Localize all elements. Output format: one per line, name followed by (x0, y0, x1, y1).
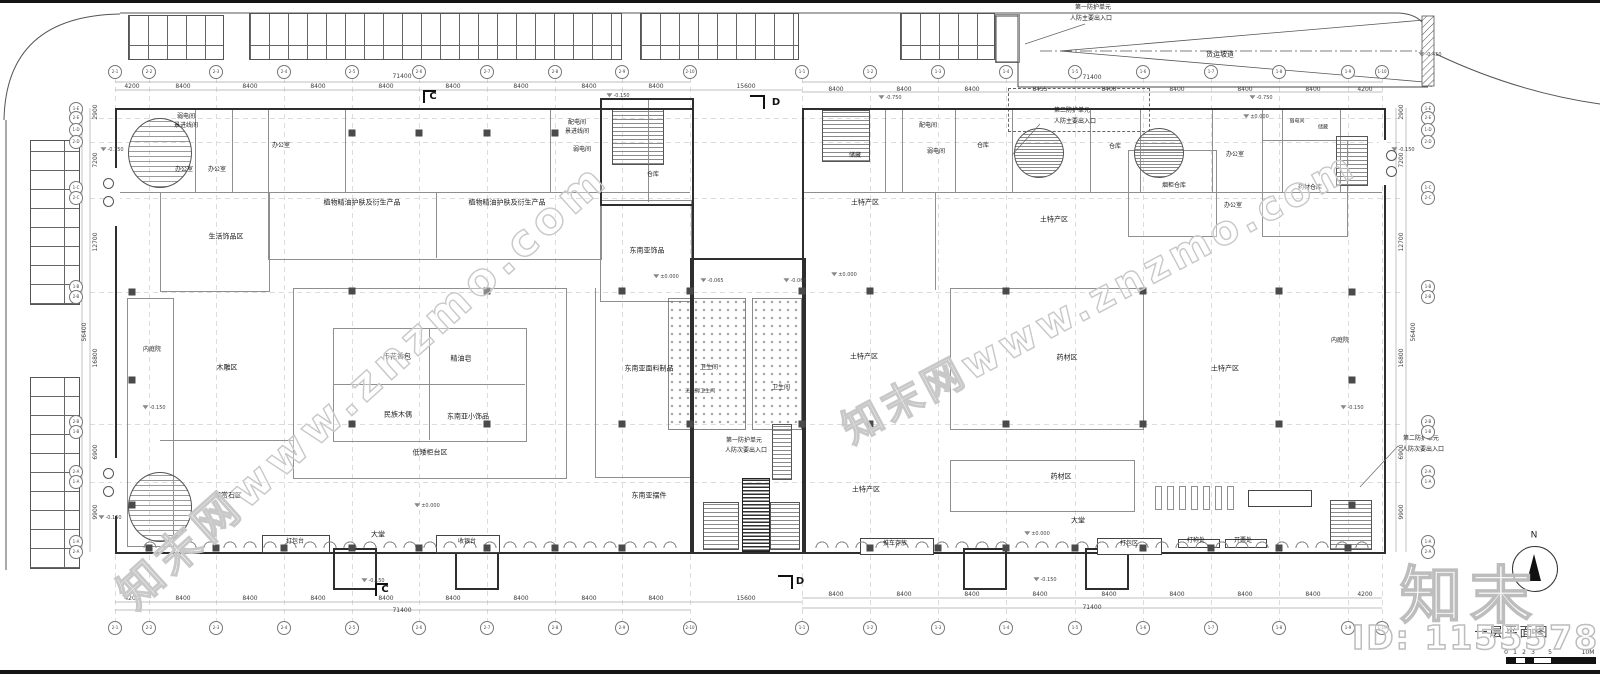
north-label: N (1531, 532, 1538, 541)
grid-bubble: 2-B (1421, 290, 1435, 304)
plan-label: -0.450 (1418, 52, 1441, 58)
structural-column (867, 421, 874, 428)
door-arc (1386, 166, 1397, 177)
plan-label: 土特产区 (851, 200, 879, 207)
grid-bubble: 2-5 (345, 65, 359, 79)
grid-bubble: 1-1 (795, 65, 809, 79)
grid-bubble: 2-2 (142, 65, 156, 79)
grid-bubble: 2-C (1421, 191, 1435, 205)
structural-column (484, 421, 491, 428)
plan-label: 8400 (1169, 87, 1184, 93)
plan-label: 8400 (581, 84, 596, 90)
plan-label: 8400 (964, 592, 979, 598)
grid-bubble: 2-3 (209, 621, 223, 635)
structural-column (484, 545, 491, 552)
grid-bubble: 2-4 (277, 65, 291, 79)
plan-label: 10M (1582, 650, 1595, 656)
grid-bubble: 2-6 (412, 621, 426, 635)
door-arc (103, 486, 114, 497)
door-arc (103, 178, 114, 189)
site-curve-topright (1436, 54, 1600, 104)
grid-bubble: 2-7 (480, 621, 494, 635)
plan-label: ±0.000 (653, 274, 679, 280)
plan-label: 人防主要出入口 (1070, 16, 1112, 22)
plan-label: 8400 (581, 596, 596, 602)
structural-column (213, 545, 220, 552)
plan-label: 弱电间 (1289, 120, 1304, 125)
grid-bubble: 1-5 (1068, 621, 1082, 635)
grid-bubble: 2-9 (615, 621, 629, 635)
plan-label: D (796, 577, 804, 587)
plan-label: 8400 (1101, 592, 1116, 598)
plan-label: 干花香包 (383, 354, 411, 361)
entrance-gap (112, 168, 120, 226)
grid-bubble: 2-7 (480, 65, 494, 79)
plan-label: 办公室 (1224, 203, 1242, 209)
plan-label: 内庭院 (143, 347, 161, 353)
plan-label: 8400 (828, 87, 843, 93)
plan-label: 药材区 (1051, 474, 1072, 481)
grid-bubble: 1-9 (1341, 621, 1355, 635)
plan-label: 办公室 (1226, 152, 1244, 158)
plan-label: 8400 (513, 596, 528, 602)
grid-bubble: 1-10 (1375, 65, 1389, 79)
plan-label: 15600 (736, 596, 755, 602)
grid-bubble: 1-6 (1136, 621, 1150, 635)
plan-label: -0.150 (142, 405, 165, 411)
grid-bubble: 2-5 (345, 621, 359, 635)
plan-label: 收银台 (458, 539, 476, 545)
grid-bubble: 1-2 (863, 65, 877, 79)
structural-column (1003, 545, 1010, 552)
grid-bubble: 2-9 (615, 65, 629, 79)
scale-segment (1551, 658, 1595, 663)
plan-label: 配电间 (568, 120, 586, 126)
scale-segment (1516, 658, 1525, 663)
plan-label: 人防次要出入口 (725, 448, 767, 454)
sheet-border-top (0, 0, 1600, 3)
plan-label: 4200 (1357, 592, 1372, 598)
plan-label: 4200 (124, 84, 139, 90)
structural-column (416, 545, 423, 552)
plan-label: 第一防护单元 (726, 438, 762, 444)
plan-label: ±0.000 (414, 503, 440, 509)
grid-bubble: 2-2 (142, 621, 156, 635)
plan-label: 开票处 (1234, 538, 1252, 544)
plan-label: 8400 (310, 84, 325, 90)
plan-label: 8455 (1032, 87, 1047, 93)
plan-label: 8400 (1169, 592, 1184, 598)
plan-label: 8400 (1305, 592, 1320, 598)
plan-label: 8400 (828, 592, 843, 598)
plan-label: C (381, 585, 388, 595)
door-arc (103, 196, 114, 207)
grid-bubble: 1-A (69, 475, 83, 489)
plan-label: 8400 (896, 592, 911, 598)
structural-column (867, 545, 874, 552)
structural-column (687, 421, 694, 428)
plan-label: 民族木偶 (384, 412, 412, 419)
ramp-end-hatch (1422, 16, 1434, 86)
plan-label: -0.150 (1391, 147, 1414, 153)
door-arc (103, 468, 114, 479)
plan-label: 精油皂 (451, 356, 472, 363)
plan-label: 12700 (1399, 232, 1405, 251)
plan-label: 第一防护单元 (1075, 5, 1111, 11)
plan-label: 药材仓库 (1298, 185, 1322, 191)
entrance-gap (112, 458, 120, 516)
structural-column (799, 288, 806, 295)
plan-label: 土特产区 (1040, 217, 1068, 224)
structural-column (935, 545, 942, 552)
plan-label: 9900 (1399, 504, 1405, 519)
site-corner-curve-topleft (4, 14, 120, 120)
site-boundary-top (120, 13, 1431, 87)
structural-column (349, 545, 356, 552)
plan-label: 8400 (1237, 87, 1252, 93)
plan-label: 8400 (1305, 87, 1320, 93)
plan-label: 8400 (513, 84, 528, 90)
plan-label: 2900 (93, 104, 99, 119)
plan-label: 5 (1548, 650, 1552, 656)
section-cut-marks (376, 91, 792, 596)
structural-column (687, 288, 694, 295)
plan-label: 人防次要出入口 (1402, 447, 1444, 453)
plan-label: 内庭院 (1331, 338, 1349, 344)
structural-column (1003, 421, 1010, 428)
grid-bubble: 1-3 (931, 621, 945, 635)
plan-label: 植物精油护肤及衍生产品 (324, 200, 401, 207)
plan-label: 东南亚饰品 (630, 248, 665, 255)
plan-label: 71400 (392, 74, 411, 80)
structural-column (484, 130, 491, 137)
structural-column (552, 545, 559, 552)
plan-label: 东南亚面料制品 (625, 366, 674, 373)
grid-bubble: 2-10 (683, 65, 697, 79)
plan-label: 仓库 (977, 143, 989, 149)
plan-label: C (429, 92, 436, 102)
plan-label: 观赏石区 (214, 493, 242, 500)
plan-label: 4200 (124, 596, 139, 602)
plan-label: 56400 (1411, 322, 1417, 341)
plan-label: 1 (1513, 650, 1517, 656)
plan-label: 低矮柜台区 (413, 450, 448, 457)
plan-label: 第二防护单元 (1403, 436, 1439, 442)
plan-label: 7200 (1399, 152, 1405, 167)
plan-label: -0.150 (98, 515, 121, 521)
structural-column (1140, 545, 1147, 552)
grid-bubble: 2-1 (108, 65, 122, 79)
plan-label: 8400 (1237, 592, 1252, 598)
scale-segment (1525, 658, 1534, 663)
grid-bubble: 1-10 (1375, 621, 1389, 635)
grid-bubble: 1-A (1421, 475, 1435, 489)
plan-label: -0.750 (878, 95, 901, 101)
grid-bubble: 2-D (1421, 135, 1435, 149)
scale-bar (1506, 657, 1596, 664)
plan-label: 15600 (736, 84, 755, 90)
grid-bubble: 2-1 (108, 621, 122, 635)
structural-column (1140, 421, 1147, 428)
plan-label: 8400 (378, 596, 393, 602)
structural-column (1208, 545, 1215, 552)
grid-bubble: 1-7 (1204, 621, 1218, 635)
plan-label: 弱电间 (177, 114, 195, 120)
structural-column (799, 421, 806, 428)
structural-column (1276, 421, 1283, 428)
grid-bubble: 2-10 (683, 621, 697, 635)
plan-label: -0.150 (361, 578, 384, 584)
plan-label: ±0.000 (1243, 114, 1269, 120)
structural-column (484, 288, 491, 295)
plan-label: 推车存放 (883, 541, 907, 547)
plan-label: 8400 (175, 84, 190, 90)
plan-label: 木雕区 (217, 365, 238, 372)
grid-bubble: 2-D (69, 135, 83, 149)
plan-label: 8400 (648, 84, 663, 90)
north-arrow-icon (1527, 554, 1541, 581)
grid-bubble: 2-B (69, 290, 83, 304)
plan-label: 8400 (1101, 87, 1116, 93)
plan-label: 大堂 (371, 532, 385, 539)
plan-label: 景进线间 (565, 129, 589, 135)
plan-label: ±0.000 (831, 272, 857, 278)
plan-label: 药材区 (1057, 355, 1078, 362)
structural-column (281, 545, 288, 552)
plan-label: 8400 (896, 87, 911, 93)
scale-segment (1507, 658, 1516, 663)
plan-label: 土特产区 (1211, 366, 1239, 373)
plan-label: D (772, 98, 780, 108)
plan-label: 8400 (964, 87, 979, 93)
plan-label: 0 (1504, 650, 1508, 656)
plan-label: 景进线间 (174, 123, 198, 129)
grid-bubble: 1-2 (863, 621, 877, 635)
plan-label: 卫生间 (772, 385, 790, 391)
scale-segment (1534, 658, 1551, 663)
plan-label: 东南亚小饰品 (447, 414, 489, 421)
structural-column (349, 421, 356, 428)
plan-label: 8400 (378, 84, 393, 90)
plan-label: 8400 (1032, 592, 1047, 598)
structural-column (1140, 288, 1147, 295)
grid-bubble: 1-8 (1272, 621, 1286, 635)
plan-label: 储藏 (849, 153, 861, 159)
grid-bubble: 2-A (69, 545, 83, 559)
floor-plan-canvas: N 一层平面图 知末网www.znzmo.com 知末网www.znzmo.co… (0, 0, 1600, 677)
plan-label: 弱电间 (573, 147, 591, 153)
plan-label: 生活饰品区 (209, 234, 244, 241)
plan-label: 大堂 (1071, 518, 1085, 525)
plan-label: 货运坡道 (1206, 52, 1234, 59)
plan-label: 打包台 (286, 539, 304, 545)
grid-bubble: 1-1 (795, 621, 809, 635)
plan-label: 打称处 (1187, 538, 1205, 544)
plan-label: 12700 (93, 232, 99, 251)
plan-label: 8400 (648, 596, 663, 602)
grid-bubble: 1-8 (1272, 65, 1286, 79)
structural-column (1345, 545, 1352, 552)
dimension-lines (82, 82, 1406, 610)
plan-label: 8400 (242, 84, 257, 90)
drawing-title: 一层平面图 (1474, 627, 1549, 640)
structural-column (552, 130, 559, 137)
plan-label: -0.065 (700, 278, 723, 284)
plan-label: 第二防护单元 (1054, 108, 1090, 114)
plan-label: -0.750 (1249, 95, 1272, 101)
grid-bubble: 2-3 (209, 65, 223, 79)
plan-label: -0.150 (100, 147, 123, 153)
ramp-stair-box (996, 16, 1018, 62)
structural-column (1349, 377, 1356, 384)
plan-label: -0.150 (1340, 405, 1363, 411)
plan-label: 办公室 (208, 167, 226, 173)
plan-label: 配电间 (919, 123, 937, 129)
plan-label: 56400 (82, 322, 88, 341)
plan-label: 办公室 (175, 167, 193, 173)
grid-bubble: 1-3 (931, 65, 945, 79)
plan-label: 仓库 (1109, 144, 1121, 150)
plan-label: 弱电间 (927, 149, 945, 155)
leader-lines (1012, 24, 1398, 487)
plan-label: 71400 (392, 608, 411, 614)
grid-bubble: 2-6 (412, 65, 426, 79)
plan-label: 卫生间 (700, 365, 718, 371)
structural-column (129, 502, 136, 509)
grid-bubble: 2-8 (548, 65, 562, 79)
structural-column (416, 130, 423, 137)
grid-bubble: 1-4 (999, 621, 1013, 635)
structural-column (349, 288, 356, 295)
plan-label: -0.150 (606, 93, 629, 99)
plan-label: 71400 (1082, 605, 1101, 611)
plan-label: 6900 (93, 444, 99, 459)
structural-column (619, 288, 626, 295)
grid-bubble: 1-B (1421, 425, 1435, 439)
plan-label: 办公室 (272, 143, 290, 149)
structural-column (1072, 545, 1079, 552)
grid-bubble: 1-5 (1068, 65, 1082, 79)
grid-bubble: 1-7 (1204, 65, 1218, 79)
grid-bubble: 1-4 (999, 65, 1013, 79)
plan-label: 8400 (445, 84, 460, 90)
plan-label: 6900 (1399, 444, 1405, 459)
plan-label: 仓库 (647, 172, 659, 178)
grid-bubble: 1-B (69, 425, 83, 439)
plan-label: 8400 (445, 596, 460, 602)
structural-column (619, 421, 626, 428)
structural-column (1276, 545, 1283, 552)
plan-label: 4200 (1357, 87, 1372, 93)
structural-column (1349, 502, 1356, 509)
entrance-gap (1379, 140, 1387, 185)
grid-bubble: 2-4 (277, 621, 291, 635)
plan-label: 东南亚摆件 (632, 493, 667, 500)
structural-column (1003, 288, 1010, 295)
plan-label: 土特产区 (852, 487, 880, 494)
plan-label: 7200 (93, 152, 99, 167)
plan-label: 人防主要出入口 (1054, 119, 1096, 125)
plan-label: 打包区 (1120, 541, 1138, 547)
plan-label: 8400 (310, 596, 325, 602)
sheet-border-bottom (0, 670, 1600, 674)
structural-column (349, 130, 356, 137)
plan-label: 2 (1522, 650, 1526, 656)
plan-label: 3 (1531, 650, 1535, 656)
grid-bubble: 2-8 (548, 621, 562, 635)
grid-bubble: 1-9 (1341, 65, 1355, 79)
structural-column (867, 288, 874, 295)
plan-label: 储藏 (1318, 126, 1328, 131)
plan-label: 8400 (175, 596, 190, 602)
plan-label: 植物精油护肤及衍生产品 (469, 200, 546, 207)
plan-label: ±0.000 (1024, 531, 1050, 537)
plan-label: 2900 (1399, 104, 1405, 119)
plan-label: -0.065 (783, 278, 806, 284)
plan-label: 无障碍卫生间 (685, 390, 715, 395)
plan-label: 烟柜仓库 (1162, 183, 1186, 189)
structural-column (129, 377, 136, 384)
grid-bubble: 2-A (1421, 545, 1435, 559)
plan-label: 71400 (1082, 75, 1101, 81)
grid-bubble: 2-C (69, 191, 83, 205)
plan-label: 16800 (1399, 348, 1405, 367)
structural-column (129, 289, 136, 296)
structural-column (1349, 289, 1356, 296)
structural-column (1276, 288, 1283, 295)
grid-bubble: 1-6 (1136, 65, 1150, 79)
plan-label: 16800 (93, 348, 99, 367)
structural-column (619, 545, 626, 552)
structural-column (146, 545, 153, 552)
plan-label: 土特产区 (850, 354, 878, 361)
plan-label: 8400 (242, 596, 257, 602)
plan-label: -0.150 (1033, 577, 1056, 583)
